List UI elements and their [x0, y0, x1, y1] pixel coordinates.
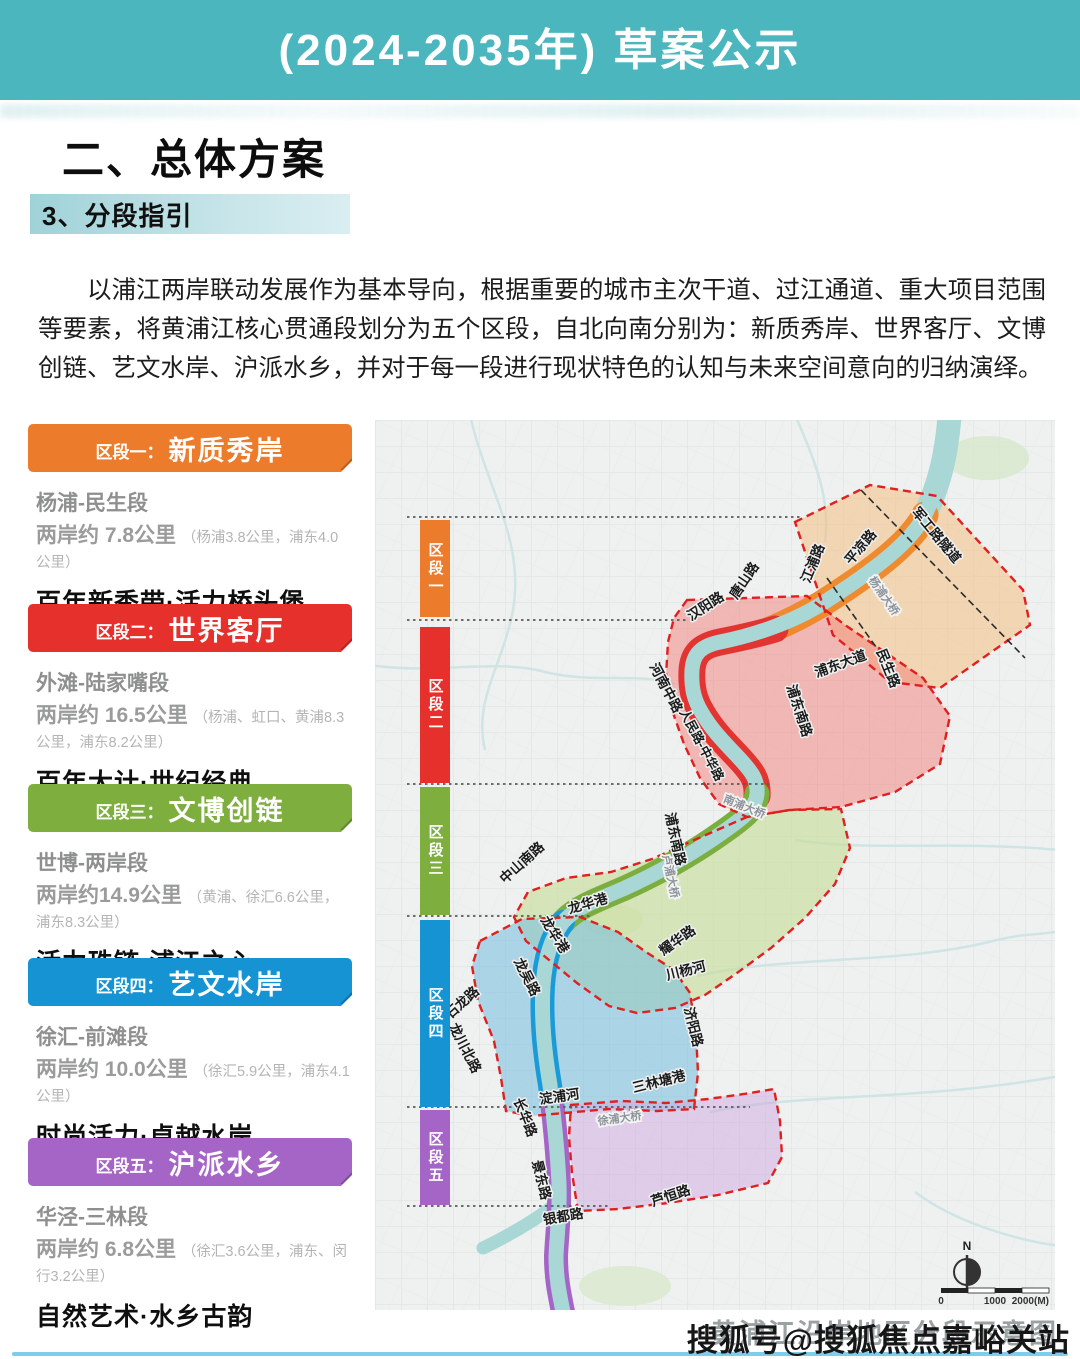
- segment-range: 杨浦-民生段: [36, 487, 352, 517]
- map-canvas: 军工路隧道 平凉路 江浦路 唐山路 汉阳路 浦东大道 民生路 河南中路 人民路-…: [375, 420, 1055, 1310]
- segment-badge: 区段三：: [96, 798, 164, 823]
- segment-length: 两岸约 16.5公里 （杨浦、虹口、黄浦8.3公里，浦东8.2公里）: [36, 699, 352, 753]
- subsection-heading: 3、分段指引: [30, 196, 192, 233]
- segment-card-4: 区段四： 艺文水岸 徐汇-前滩段 两岸约 10.0公里 （徐汇5.9公里，浦东4…: [28, 958, 352, 1153]
- segment-banner-5: 区段五： 沪派水乡: [28, 1138, 352, 1186]
- map-bar-segment-1: 区段一: [420, 520, 450, 617]
- segment-length-value: 两岸约 10.0公里: [36, 1058, 188, 1081]
- header-artifact: [0, 104, 1080, 118]
- segment-banner-4: 区段四： 艺文水岸: [28, 958, 352, 1006]
- segment-badge: 区段一：: [96, 438, 164, 463]
- segment-length: 两岸约 6.8公里 （徐汇3.6公里，浦东、闵行3.2公里）: [36, 1233, 352, 1287]
- subsection-heading-box: 3、分段指引: [30, 194, 350, 234]
- segment-name: 艺文水岸: [169, 963, 285, 1002]
- page: (2024-2035年) 草案公示 二、总体方案 3、分段指引 以浦江两岸联动发…: [0, 0, 1080, 1359]
- map-bar-segment-3: 区段三: [420, 787, 450, 915]
- segment-map: 军工路隧道 平凉路 江浦路 唐山路 汉阳路 浦东大道 民生路 河南中路 人民路-…: [375, 420, 1055, 1310]
- segment-length-value: 两岸约 6.8公里: [36, 1238, 176, 1261]
- segment-card-2: 区段二： 世界客厅 外滩-陆家嘴段 两岸约 16.5公里 （杨浦、虹口、黄浦8.…: [28, 604, 352, 799]
- segment-length: 两岸约 10.0公里 （徐汇5.9公里，浦东4.1公里）: [36, 1053, 352, 1107]
- segment-slogan: 自然艺术·水乡古韵: [36, 1297, 352, 1333]
- segment-length-value: 两岸约 16.5公里: [36, 704, 188, 727]
- segment-length: 两岸约 7.8公里 （杨浦3.8公里，浦东4.0公里）: [36, 519, 352, 573]
- segment-length: 两岸约14.9公里 （黄浦、徐汇6.6公里，浦东8.3公里）: [36, 879, 352, 933]
- intro-paragraph: 以浦江两岸联动发展作为基本导向，根据重要的城市主次干道、过江通道、重大项目范围等…: [38, 271, 1046, 388]
- scale-tick: 1000: [984, 1296, 1007, 1307]
- segment-card-1: 区段一： 新质秀岸 杨浦-民生段 两岸约 7.8公里 （杨浦3.8公里，浦东4.…: [28, 424, 352, 619]
- page-title: (2024-2035年) 草案公示: [279, 14, 802, 86]
- map-bar-segment-4: 区段四: [420, 920, 450, 1107]
- segment-banner-1: 区段一： 新质秀岸: [28, 424, 352, 472]
- segment-badge: 区段四：: [96, 972, 164, 997]
- scale-tick: 0: [938, 1296, 944, 1307]
- segment-length-value: 两岸约14.9公里: [36, 884, 182, 907]
- watermark: 搜狐号@搜狐焦点嘉峪关站: [687, 1315, 1070, 1359]
- section-heading: 二、总体方案: [62, 126, 326, 187]
- segment-name: 世界客厅: [169, 609, 285, 648]
- segment-banner-3: 区段三： 文博创链: [28, 784, 352, 832]
- segment-card-5: 区段五： 沪派水乡 华泾-三林段 两岸约 6.8公里 （徐汇3.6公里，浦东、闵…: [28, 1138, 352, 1333]
- scale-tick: 2000(M): [1012, 1296, 1049, 1307]
- page-header: (2024-2035年) 草案公示: [0, 0, 1080, 100]
- map-bar-segment-2: 区段二: [420, 627, 450, 783]
- segment-name: 沪派水乡: [169, 1143, 285, 1182]
- segment-range: 徐汇-前滩段: [36, 1021, 352, 1051]
- segment-range: 外滩-陆家嘴段: [36, 667, 352, 697]
- park-patch: [579, 1266, 671, 1306]
- segment-badge: 区段五：: [96, 1152, 164, 1177]
- segment-range: 华泾-三林段: [36, 1201, 352, 1231]
- segment-range: 世博-两岸段: [36, 847, 352, 877]
- segment-banner-2: 区段二： 世界客厅: [28, 604, 352, 652]
- segment-name: 文博创链: [169, 789, 285, 828]
- map-bar-segment-5: 区段五: [420, 1110, 450, 1205]
- segment-length-value: 两岸约 7.8公里: [36, 524, 176, 547]
- svg-text:N: N: [963, 1239, 972, 1253]
- segment-badge: 区段二：: [96, 618, 164, 643]
- segment-card-3: 区段三： 文博创链 世博-两岸段 两岸约14.9公里 （黄浦、徐汇6.6公里，浦…: [28, 784, 352, 979]
- segment-name: 新质秀岸: [169, 429, 285, 468]
